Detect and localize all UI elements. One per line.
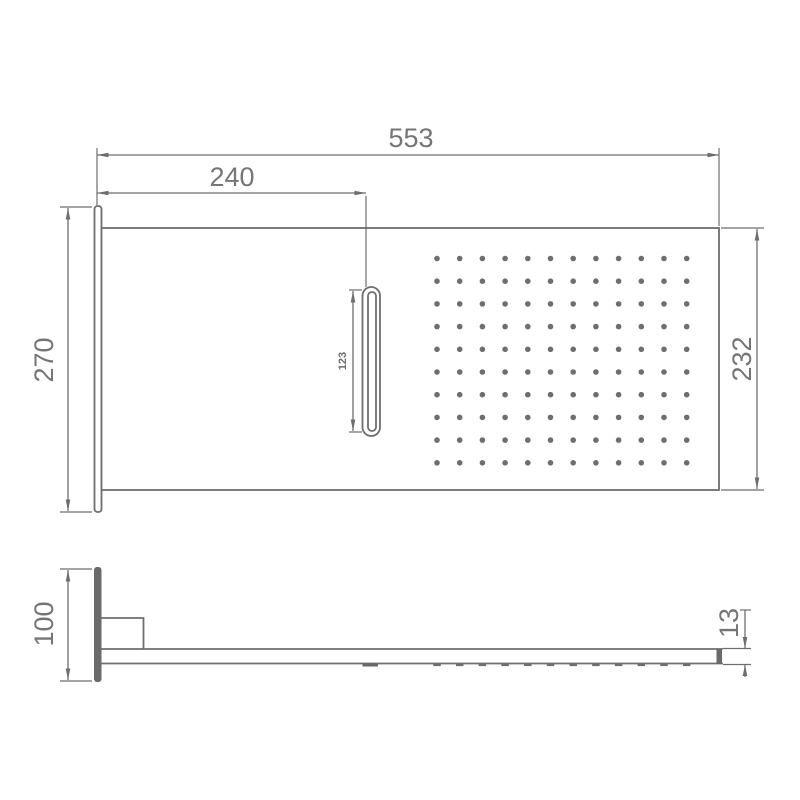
wall-plate-front: [95, 206, 102, 512]
nozzle-dot: [639, 369, 645, 375]
nozzle-dot: [570, 278, 576, 284]
nozzle-dot: [525, 347, 531, 353]
nozzle-dot: [548, 437, 554, 443]
nozzle-dot: [525, 460, 531, 466]
nozzle-dot: [570, 347, 576, 353]
nozzle-dot: [434, 324, 440, 330]
dimension-body-height: 232: [721, 228, 764, 490]
nozzle-dot: [616, 278, 622, 284]
nozzle-dot: [570, 437, 576, 443]
front-view: 553 240 270 232 123: [29, 123, 764, 512]
nozzle-dot: [502, 415, 508, 421]
nozzle-dot: [525, 301, 531, 307]
nozzle-dot: [661, 347, 667, 353]
nozzle-dot: [434, 415, 440, 421]
nozzle-dot: [480, 256, 486, 262]
nozzle-dot: [593, 347, 599, 353]
nozzle-dot: [502, 369, 508, 375]
nozzle-dot: [502, 301, 508, 307]
nozzle-dot: [639, 347, 645, 353]
nozzle-dot: [480, 324, 486, 330]
nozzle-dot: [434, 460, 440, 466]
nozzle-dot: [525, 392, 531, 398]
nozzle-dash: [638, 664, 646, 667]
nozzle-dot: [661, 437, 667, 443]
nozzle-dot: [434, 278, 440, 284]
nozzle-dot: [480, 347, 486, 353]
nozzle-dot: [684, 460, 690, 466]
dimension-plate-height-side: 100: [29, 569, 92, 681]
dimension-arm-thickness: 13: [714, 608, 751, 677]
nozzle-dot: [684, 278, 690, 284]
nozzle-dot: [480, 278, 486, 284]
nozzle-dot: [639, 437, 645, 443]
nozzle-dot: [593, 301, 599, 307]
nozzle-dot: [661, 460, 667, 466]
nozzle-dot: [593, 392, 599, 398]
nozzle-dot: [457, 415, 463, 421]
nozzle-dot: [548, 347, 554, 353]
nozzle-dot: [616, 437, 622, 443]
nozzle-dot: [502, 347, 508, 353]
nozzle-dot: [502, 392, 508, 398]
nozzle-dot: [502, 324, 508, 330]
nozzle-dot: [457, 437, 463, 443]
nozzle-dash: [479, 664, 487, 667]
nozzle-dot: [616, 369, 622, 375]
nozzle-dot: [616, 256, 622, 262]
nozzle-dot: [548, 392, 554, 398]
nozzle-dot: [661, 369, 667, 375]
nozzle-dot: [525, 415, 531, 421]
nozzle-dot: [661, 301, 667, 307]
dimension-plate-height-front: 270: [29, 207, 92, 512]
nozzle-dot: [616, 301, 622, 307]
dimension-label-plate-height-front: 270: [29, 337, 59, 382]
nozzle-dot: [525, 369, 531, 375]
dimension-label-slot-length: 123: [337, 352, 349, 370]
dimension-overall-width: 553: [97, 123, 719, 226]
nozzle-dot: [684, 392, 690, 398]
nozzle-dot: [525, 278, 531, 284]
nozzle-dot: [457, 324, 463, 330]
nozzle-dot: [616, 324, 622, 330]
nozzle-dot: [480, 369, 486, 375]
nozzle-dot: [434, 256, 440, 262]
nozzle-dot: [457, 256, 463, 262]
nozzle-dot: [684, 437, 690, 443]
technical-drawing-canvas: 553 240 270 232 123: [0, 0, 800, 800]
nozzle-dot: [434, 369, 440, 375]
nozzle-dot: [548, 324, 554, 330]
nozzle-dot: [570, 301, 576, 307]
nozzle-dot: [684, 347, 690, 353]
nozzle-dot: [525, 324, 531, 330]
nozzle-dot: [661, 415, 667, 421]
nozzle-dot: [548, 369, 554, 375]
nozzle-dot: [616, 392, 622, 398]
nozzle-dot: [570, 415, 576, 421]
shower-body-front: [102, 228, 720, 490]
nozzle-dot: [616, 347, 622, 353]
nozzle-dot: [434, 347, 440, 353]
nozzle-dot: [593, 324, 599, 330]
nozzle-dot: [639, 256, 645, 262]
nozzle-dot: [502, 256, 508, 262]
nozzle-dot: [639, 415, 645, 421]
nozzle-dot: [593, 369, 599, 375]
nozzle-dash: [615, 664, 623, 667]
dimension-label-arm-thickness: 13: [714, 608, 744, 638]
nozzle-dot: [616, 415, 622, 421]
nozzle-dash: [456, 664, 464, 667]
nozzle-dot: [548, 460, 554, 466]
nozzle-dot: [661, 392, 667, 398]
dimension-label-overall-width: 553: [388, 123, 433, 153]
dimension-label-body-height: 232: [727, 336, 757, 381]
nozzle-dot: [434, 437, 440, 443]
nozzle-dot: [480, 301, 486, 307]
nozzle-dot: [502, 278, 508, 284]
nozzle-dot: [525, 256, 531, 262]
nozzle-dot: [502, 437, 508, 443]
nozzle-dot: [593, 437, 599, 443]
nozzle-dot: [593, 460, 599, 466]
nozzle-dot: [570, 369, 576, 375]
nozzle-dot: [480, 392, 486, 398]
nozzle-dot: [457, 301, 463, 307]
nozzle-dot: [684, 256, 690, 262]
nozzle-dot: [457, 347, 463, 353]
nozzle-dot: [548, 301, 554, 307]
nozzle-dash: [683, 664, 691, 667]
nozzle-dot: [639, 278, 645, 284]
nozzle-dot: [570, 256, 576, 262]
mounting-bracket-side: [102, 618, 144, 648]
side-view: 100 13: [29, 567, 751, 682]
nozzle-dot: [570, 460, 576, 466]
nozzle-dot: [548, 415, 554, 421]
nozzle-dot: [684, 324, 690, 330]
nozzle-dot: [502, 460, 508, 466]
nozzle-dash: [592, 664, 600, 667]
nozzle-dot: [525, 437, 531, 443]
nozzle-dash: [524, 664, 532, 667]
nozzle-dot: [639, 392, 645, 398]
nozzle-dash: [501, 664, 509, 667]
nozzle-dot: [593, 278, 599, 284]
nozzle-dot: [684, 415, 690, 421]
nozzle-dot: [684, 369, 690, 375]
nozzle-dot: [684, 301, 690, 307]
nozzle-dot: [457, 369, 463, 375]
nozzle-dot: [593, 415, 599, 421]
nozzle-dot: [434, 392, 440, 398]
waterfall-slot-side-dash: [363, 664, 379, 667]
nozzle-dot: [639, 324, 645, 330]
nozzle-dot: [480, 415, 486, 421]
nozzle-dot: [457, 392, 463, 398]
nozzle-dot: [616, 460, 622, 466]
arm-end-cap: [717, 649, 723, 665]
nozzle-dot: [639, 301, 645, 307]
drawing-page: 553 240 270 232 123: [0, 0, 800, 800]
nozzle-dash: [660, 664, 668, 667]
nozzle-dot: [548, 278, 554, 284]
nozzle-dot: [480, 460, 486, 466]
dimension-label-slot-offset: 240: [209, 162, 254, 192]
nozzle-dot: [457, 460, 463, 466]
nozzle-dot: [661, 324, 667, 330]
nozzle-dot: [570, 324, 576, 330]
nozzle-dot: [661, 256, 667, 262]
nozzle-dot: [570, 392, 576, 398]
dimension-label-plate-height-side: 100: [29, 601, 59, 646]
nozzle-dash: [547, 664, 555, 667]
wall-plate-side: [94, 567, 102, 682]
nozzle-dot: [593, 256, 599, 262]
nozzle-dot: [457, 278, 463, 284]
nozzle-dash: [433, 664, 441, 667]
nozzle-dash: [569, 664, 577, 667]
nozzle-dot: [480, 437, 486, 443]
nozzle-dot: [661, 278, 667, 284]
nozzle-dot: [548, 256, 554, 262]
nozzle-dot: [639, 460, 645, 466]
nozzle-dot: [434, 301, 440, 307]
